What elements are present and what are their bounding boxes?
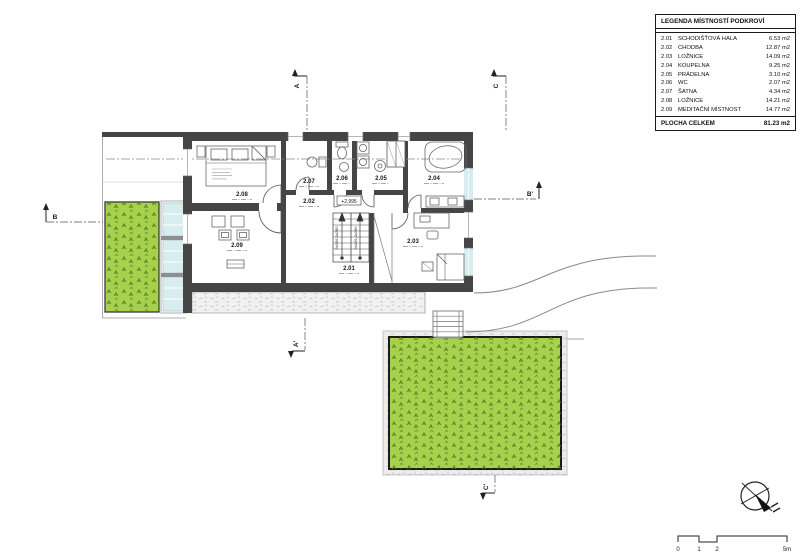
room-label-2-08: 2.08 [232,192,252,200]
legend-row: 2.09 MEDITAČNÍ MÍSTNOST 14.77 m2 [656,105,795,114]
legend-room-name: LOŽNICE [678,54,756,60]
legend-room-name: WC [678,80,756,86]
legend-room-name: MEDITAČNÍ MÍSTNOST [678,107,756,113]
legend-room-id: 2.08 [661,98,678,104]
room-label-2-09: 2.09 [227,243,247,251]
scale-tick-5m: 5m [783,547,791,553]
scale-tick-1: 1 [697,547,701,553]
legend-total-row: PLOCHA CELKEM 81.23 m2 [656,116,795,130]
svg-text:2.02: 2.02 [303,199,315,205]
window-top-2 [348,132,363,141]
wc-fixtures [336,142,349,172]
legend-room-name: PRÁDELNA [678,72,756,78]
drawing-sheet: 9x166,4x280 9x166,4x280 +2,995 2.08 2.07… [0,0,800,560]
staircase: 9x166,4x280 9x166,4x280 [333,213,369,262]
svg-text:2.05: 2.05 [375,176,387,182]
window-left-2 [183,214,192,244]
legend-row: 2.07 ŠATNA 4.34 m2 [656,88,795,97]
bed-bedroom-left [197,146,275,186]
section-label-b-prime: B' [527,191,534,198]
legend-room-name: CHODBA [678,45,756,51]
legend-row: 2.05 PRÁDELNA 3.10 m2 [656,70,795,79]
room-label-2-05: 2.05 [372,176,390,184]
room-label-2-02: 2.02 [299,199,319,207]
laundry-fixtures [357,142,386,172]
svg-text:2.08: 2.08 [236,192,248,198]
legend-room-id: 2.04 [661,63,678,69]
section-label-c: C [493,83,500,88]
level-marker: +2,995 [337,196,361,205]
window-right-3 [464,248,473,276]
legend-room-id: 2.01 [661,36,678,42]
section-marker-a-prime: A' [288,318,305,358]
legend-room-area: 12.87 m2 [756,45,790,51]
wardrobe-fixtures [307,157,326,167]
gravel-terrace [192,292,425,313]
scale-bar: 0 1 2 5m [676,536,791,553]
compass-icon [741,482,780,512]
room-label-2-03: 2.03 [403,239,423,247]
section-label-c-prime: C' [483,483,490,490]
legend-total-label: PLOCHA CELKEM [661,120,715,127]
svg-text:2.09: 2.09 [231,243,243,249]
void-band [374,213,392,283]
legend-title: LEGENDA MÍSTNOSTÍ PODKROVÍ [656,15,795,29]
section-marker-a: A [292,69,307,132]
legend-room-name: KOUPELNA [678,63,756,69]
green-roof-left [105,202,159,312]
bathroom-fixtures [425,142,466,207]
legend-room-id: 2.06 [661,80,678,86]
scale-tick-0: 0 [676,547,680,553]
section-label-a: A [294,83,301,88]
section-label-b: B [53,214,58,221]
service-shaft [387,141,405,167]
legend-room-id: 2.02 [661,45,678,51]
meditation-fixtures [212,216,249,268]
legend-room-id: 2.09 [661,107,678,113]
room-label-2-06: 2.06 [333,176,351,184]
window-top-3 [398,132,410,141]
legend-room-area: 14.77 m2 [756,107,790,113]
exterior-stairs [433,311,463,337]
stair-note-left: 9x166,4x280 [334,226,339,250]
section-marker-c-prime: C' [480,475,495,500]
window-top-1 [288,132,303,141]
svg-text:2.04: 2.04 [428,176,440,182]
legend-room-area: 3.10 m2 [756,72,790,78]
legend-row: 2.02 CHODBA 12.87 m2 [656,44,795,53]
svg-text:2.06: 2.06 [336,176,348,182]
window-left-1 [183,149,192,176]
legend-room-id: 2.05 [661,72,678,78]
legend-rows: 2.01 SCHODIŠŤOVÁ HALA 6.53 m2 2.02 CHODB… [656,33,795,116]
legend-room-id: 2.03 [661,54,678,60]
legend-room-area: 6.53 m2 [756,36,790,42]
svg-text:2.03: 2.03 [407,239,419,245]
section-marker-c: C [491,69,506,132]
legend-room-area: 14.09 m2 [756,54,790,60]
legend-room-area: 14.21 m2 [756,98,790,104]
legend-total-area: 81.23 m2 [764,120,790,127]
legend-row: 2.04 KOUPELNA 9.25 m2 [656,61,795,70]
room-label-2-04: 2.04 [424,176,444,184]
svg-text:2.01: 2.01 [343,266,355,272]
room-label-2-01: 2.01 [339,266,359,274]
legend-room-name: ŠATNA [678,89,756,95]
svg-text:+2,995: +2,995 [341,199,357,205]
legend-room-id: 2.07 [661,89,678,95]
legend-room-area: 2.07 m2 [756,80,790,86]
section-label-a-prime: A' [293,340,300,347]
green-roof-bottom [383,325,584,475]
legend-room-area: 9.25 m2 [756,63,790,69]
window-right-1 [464,168,473,200]
section-marker-b-prime: B' [474,181,542,199]
legend-row: 2.01 SCHODIŠŤOVÁ HALA 6.53 m2 [656,35,795,44]
scale-tick-2: 2 [715,547,719,553]
section-marker-b: B [43,203,103,222]
legend-room-name: SCHODIŠŤOVÁ HALA [678,36,756,42]
window-right-2 [464,212,473,238]
legend-table: LEGENDA MÍSTNOSTÍ PODKROVÍ 2.01 SCHODIŠŤ… [655,14,796,131]
legend-row: 2.06 WC 2.07 m2 [656,79,795,88]
stair-note-right: 9x166,4x280 [353,226,358,250]
garden-path [466,256,657,332]
legend-room-name: LOŽNICE [678,98,756,104]
legend-row: 2.03 LOŽNICE 14.09 m2 [656,53,795,62]
legend-row: 2.08 LOŽNICE 14.21 m2 [656,96,795,105]
legend-room-area: 4.34 m2 [756,89,790,95]
svg-text:2.07: 2.07 [303,179,315,185]
